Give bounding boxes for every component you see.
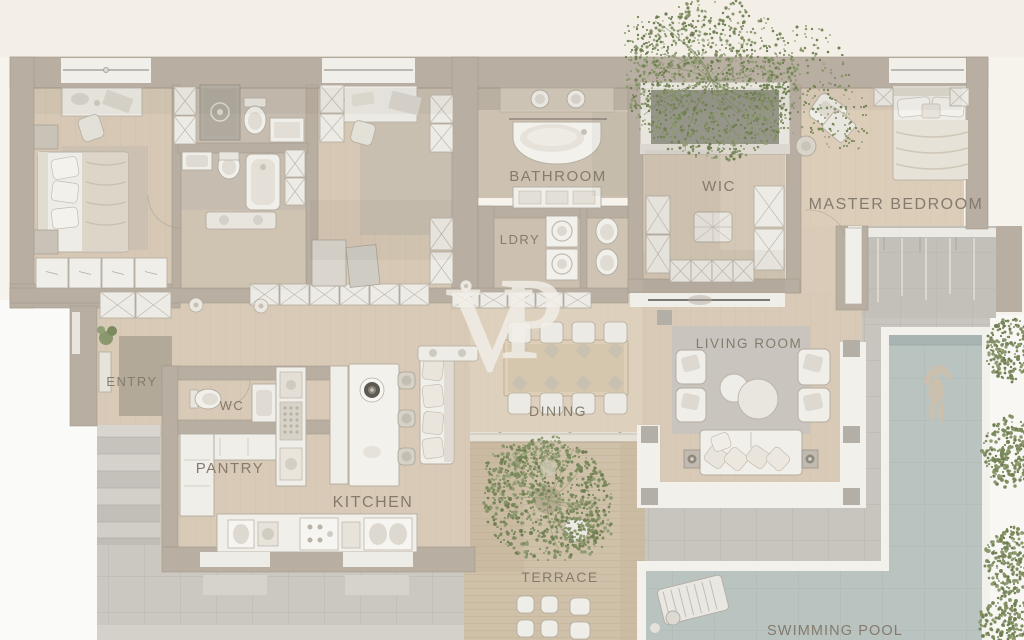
svg-text:WIC: WIC xyxy=(702,178,736,195)
svg-text:PANTRY: PANTRY xyxy=(196,460,264,477)
svg-text:ENTRY: ENTRY xyxy=(106,374,157,389)
svg-text:DINING: DINING xyxy=(529,403,587,419)
svg-text:TERRACE: TERRACE xyxy=(521,569,598,585)
svg-text:P: P xyxy=(500,255,563,382)
svg-text:MASTER BEDROOM: MASTER BEDROOM xyxy=(809,196,984,213)
svg-text:KITCHEN: KITCHEN xyxy=(333,494,414,511)
svg-text:SWIMMING POOL: SWIMMING POOL xyxy=(767,623,903,639)
svg-text:WC: WC xyxy=(220,398,245,413)
svg-text:BATHROOM: BATHROOM xyxy=(509,168,607,185)
svg-text:LDRY: LDRY xyxy=(500,232,540,247)
svg-text:LIVING ROOM: LIVING ROOM xyxy=(696,336,803,351)
